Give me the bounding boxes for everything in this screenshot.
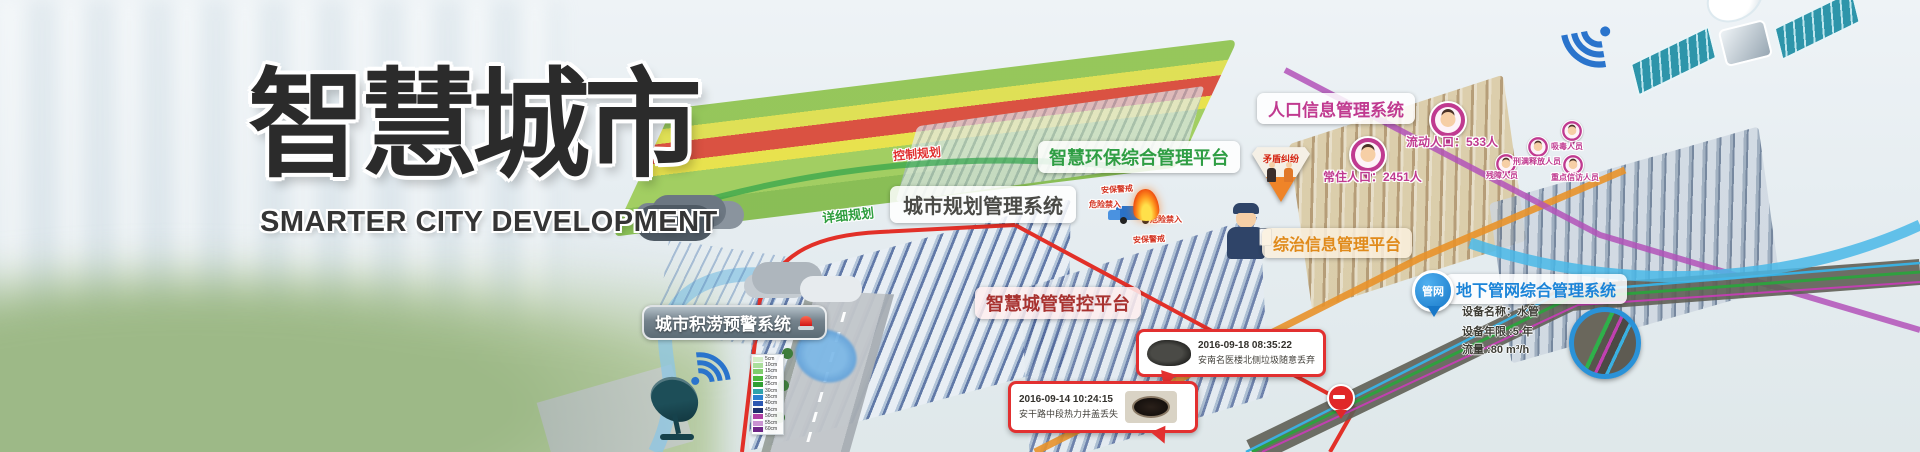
legend-value: 45cm [765,408,777,413]
legend-row: 60cm [753,426,782,432]
marker-label-drug: 吸毒人员 [1551,141,1583,152]
marker-label-disabled: 残障人员 [1486,170,1518,181]
legend-value: 30cm [765,389,777,394]
incident-text: 2016-09-14 10:24:15 安干路中段热力井盖丢失 [1019,394,1118,420]
label-city-mgmt-platform[interactable]: 智慧城管管控平台 [975,287,1141,319]
warning-guard-bottom: 安保警戒 [1133,233,1166,246]
satellite-dish-icon [650,378,710,444]
police-face [1236,213,1256,228]
incident-text: 2016-09-18 08:35:22 安南名医楼北侧垃圾随意丢弃 [1198,340,1315,366]
legend-value: 55cm [765,421,777,426]
legend-swatch [753,369,763,374]
label-pipes-system[interactable]: 地下管网综合管理系统 [1445,274,1627,304]
flood-legend: 5cm10cm15cm20cm25cm30cm35cm40cm45cm50cm5… [751,354,784,435]
marker-label-released: 刑满释放人员 [1513,156,1561,167]
label-population-system[interactable]: 人口信息管理系统 [1257,93,1415,124]
person-figure [1267,168,1276,182]
smart-city-banner: 智慧城市 SMARTER CITY DEVELOPMENT 智慧环保综合管理平台… [0,0,1920,452]
pipe-closeup-lens [1569,307,1641,379]
label-flood-warning-system[interactable]: 城市积涝预警系统 [642,305,827,340]
legend-swatch [753,427,763,432]
legend-value: 60cm [765,427,777,432]
cloud-icon [800,276,862,302]
marker-label-resident-population: 常住人口：2451人 [1323,168,1422,185]
legend-swatch [753,408,763,413]
incident-callout-manhole: 2016-09-14 10:24:15 安干路中段热力井盖丢失 [1008,381,1198,433]
conflict-pin: 矛盾纠纷 [1252,146,1310,202]
garbage-photo [1147,340,1191,366]
legend-swatch [753,382,763,387]
legend-value: 20cm [765,376,777,381]
incident-desc: 安南名医楼北侧垃圾随意丢弃 [1198,353,1315,366]
dish-base [660,434,694,440]
solar-panel [1630,25,1717,97]
pipe-info-age: 设备年限 :5 年 [1462,323,1533,339]
marker-label-conflict: 矛盾纠纷 [1252,152,1310,165]
satellite-body [1718,19,1774,67]
warning-guard-top: 安保警戒 [1101,183,1134,196]
legend-value: 15cm [765,369,777,374]
warning-danger-left: 危险禁入 [1089,199,1121,210]
police-officer-icon [1226,203,1266,265]
flood-label-text: 城市积涝预警系统 [655,310,791,335]
legend-value: 5cm [765,357,774,362]
legend-value: 10cm [765,363,777,368]
incident-desc: 安干路中段热力井盖丢失 [1019,407,1118,420]
pipes-pin-tip [1427,306,1441,324]
page-subtitle: SMARTER CITY DEVELOPMENT [260,206,718,239]
pipe-info-name: 设备名称：水管 [1462,303,1539,319]
legend-swatch [753,376,763,381]
page-title: 智慧城市 [248,56,696,198]
incident-time: 2016-09-14 10:24:15 [1019,394,1118,405]
siren-icon [798,316,814,330]
legend-value: 35cm [765,395,777,400]
no-entry-pin [1327,384,1355,412]
pipe-info-flow: 流量 :80 m³/h [1462,341,1529,357]
legend-value: 40cm [765,401,777,406]
legend-swatch [753,363,763,368]
legend-swatch [753,414,763,419]
solar-panel [1774,0,1861,61]
manhole-photo [1125,391,1177,423]
incident-time: 2016-09-18 08:35:22 [1198,340,1315,351]
legend-value: 25cm [765,382,777,387]
legend-swatch [753,357,763,362]
incident-callout-garbage: 2016-09-18 08:35:22 安南名医楼北侧垃圾随意丢弃 [1136,329,1326,377]
legend-swatch [753,395,763,400]
legend-value: 50cm [765,414,777,419]
marker-label-floating-population: 流动人口：533人 [1406,133,1498,150]
label-governance-platform[interactable]: 综治信息管理平台 [1262,228,1412,258]
person-figure [1284,168,1293,182]
marker-label-petition: 重点信访人员 [1551,172,1599,183]
legend-swatch [753,401,763,406]
legend-swatch [753,389,763,394]
police-body [1227,227,1265,259]
label-planning-system[interactable]: 城市规划管理系统 [890,186,1076,223]
label-env-platform[interactable]: 智慧环保综合管理平台 [1038,141,1240,173]
legend-swatch [753,421,763,426]
